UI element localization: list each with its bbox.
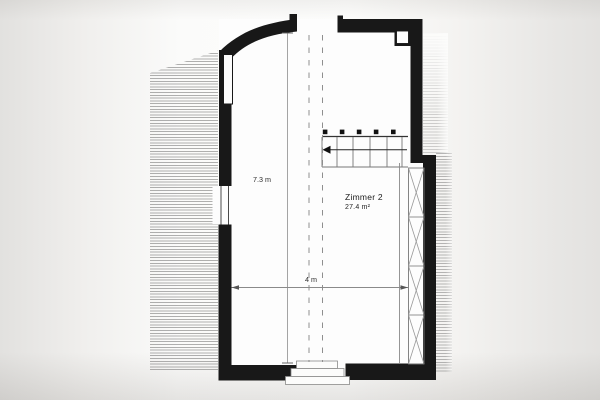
bottom-wall-right xyxy=(346,364,437,381)
horizontal-dimension-label: 4 m xyxy=(305,276,317,284)
plan-drawing xyxy=(0,0,600,400)
room-interior xyxy=(219,19,423,380)
entry-step-top xyxy=(297,361,338,369)
left-wall-window-lower xyxy=(213,186,232,225)
left-wall-lower xyxy=(219,225,232,366)
top-wall-bar-stub xyxy=(338,16,344,20)
vertical-dimension-label: 7.3 m xyxy=(253,176,271,184)
curved-wall-end-notch xyxy=(290,14,298,22)
left-wall-window-upper xyxy=(224,55,233,105)
corner-niche xyxy=(397,31,409,44)
entry-step-bottom xyxy=(286,377,350,385)
room-name-label: Zimmer 2 xyxy=(345,193,383,202)
floorplan-photo: Zimmer 2 27.4 m² 7.3 m 4 m xyxy=(0,0,600,400)
top-wall-bar xyxy=(338,19,423,33)
room-area-label: 27.4 m² xyxy=(345,204,370,212)
entry-step-middle xyxy=(291,369,344,377)
right-wall-lower xyxy=(423,157,436,380)
